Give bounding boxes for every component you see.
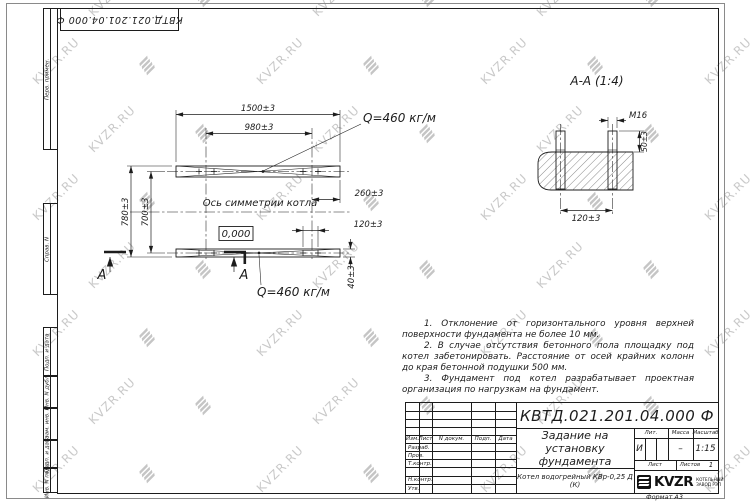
listov-label: Листов: [676, 460, 704, 470]
svg-text:120±3: 120±3: [572, 214, 601, 224]
document-title: Задание на установку фундамента: [516, 428, 634, 468]
listov-value: 1: [704, 460, 718, 470]
lit-header: Лит.: [634, 428, 668, 438]
kvzr-logo-icon: [637, 475, 651, 489]
load-label-top: Q=460 кг/м: [262, 111, 436, 173]
masshtab-header: Масштаб: [693, 428, 718, 438]
svg-text:120±3: 120±3: [354, 220, 383, 230]
svg-text:50±3: 50±3: [640, 131, 649, 152]
dim-120-section: 120±3: [561, 211, 613, 225]
svg-text:40±3: 40±3: [347, 265, 357, 288]
kvzr-logo-caption: КОТЕЛЬНЫЙ ЗАВОД РЭП: [696, 477, 723, 487]
svg-text:260±3: 260±3: [355, 189, 384, 199]
load-label-bottom: Q=460 кг/м: [257, 252, 330, 299]
section-view: А-А (1:4) M16: [538, 74, 649, 224]
drawing-sheet-viewer: KVZR.RUKVZR.RUKVZR.RUKVZR.RUKVZR.RUKVZR.…: [0, 0, 750, 500]
dim-m16: M16: [599, 111, 648, 128]
symmetry-axis-label: Ось симметрии котла: [203, 198, 318, 209]
title-block: Изм. Лист N докум. Подп. Дата Разраб. Пр…: [405, 402, 719, 494]
svg-text:0,000: 0,000: [222, 229, 251, 240]
top-beam: [167, 166, 349, 177]
col-list: Лист: [419, 435, 432, 443]
main-view: Ось симметрии котла 1500±3 980±3 260±3: [97, 104, 436, 299]
kvzr-logo-text: KVZR: [654, 474, 693, 490]
section-title: А-А (1:4): [569, 74, 623, 88]
svg-text:А: А: [97, 268, 107, 283]
product-name: Котел водогрейный КВр-0,25 Д (К): [516, 468, 634, 493]
level-mark: 0,000: [219, 227, 253, 241]
notes-block: 1. Отклонение от горизонтального уровня …: [402, 319, 694, 396]
dim-260: 260±3: [312, 180, 383, 203]
row-utv: Утв.: [408, 486, 420, 492]
col-izm: Изм.: [406, 435, 419, 443]
lit-value: И: [634, 438, 645, 460]
massa-value: –: [668, 438, 693, 460]
dim-50: 50±3: [619, 131, 649, 152]
row-tkontr: Т.контр.: [408, 461, 432, 467]
section-cut-left: А: [97, 252, 126, 283]
dim-40: 40±3: [343, 239, 357, 289]
note-3: 3. Фундамент под котел разрабатывает про…: [402, 374, 694, 396]
company-logo: KVZR КОТЕЛЬНЫЙ ЗАВОД РЭП: [637, 472, 716, 491]
note-1: 1. Отклонение от горизонтального уровня …: [402, 319, 694, 341]
svg-text:Q=460 кг/м: Q=460 кг/м: [363, 111, 436, 125]
note-2: 2. В случае отсутствия бетонного пола пл…: [402, 341, 694, 374]
row-prov: Пров.: [408, 453, 424, 459]
svg-text:700±3: 700±3: [141, 198, 151, 227]
row-razrab: Разраб.: [408, 445, 430, 451]
dim-980: 980±3: [206, 123, 312, 134]
masshtab-value: 1:15: [693, 438, 718, 460]
svg-text:Q=460 кг/м: Q=460 кг/м: [257, 285, 330, 299]
col-data: Дата: [495, 435, 516, 443]
svg-text:M16: M16: [629, 111, 648, 121]
svg-text:А: А: [239, 268, 249, 283]
row-nkontr: Н.контр.: [408, 477, 433, 483]
massa-header: Масса: [668, 428, 693, 438]
dim-1500: 1500±3: [176, 104, 340, 162]
svg-text:980±3: 980±3: [245, 123, 274, 133]
title-block-doc-number: КВТД.021.201.04.000 Ф: [516, 403, 718, 428]
col-podp: Подп.: [471, 435, 495, 443]
svg-text:1500±3: 1500±3: [241, 104, 275, 114]
dim-120: 120±3: [292, 220, 382, 247]
list-label: Лист: [634, 460, 676, 470]
svg-text:780±3: 780±3: [121, 198, 131, 227]
col-ndoc: N докум.: [432, 435, 471, 443]
